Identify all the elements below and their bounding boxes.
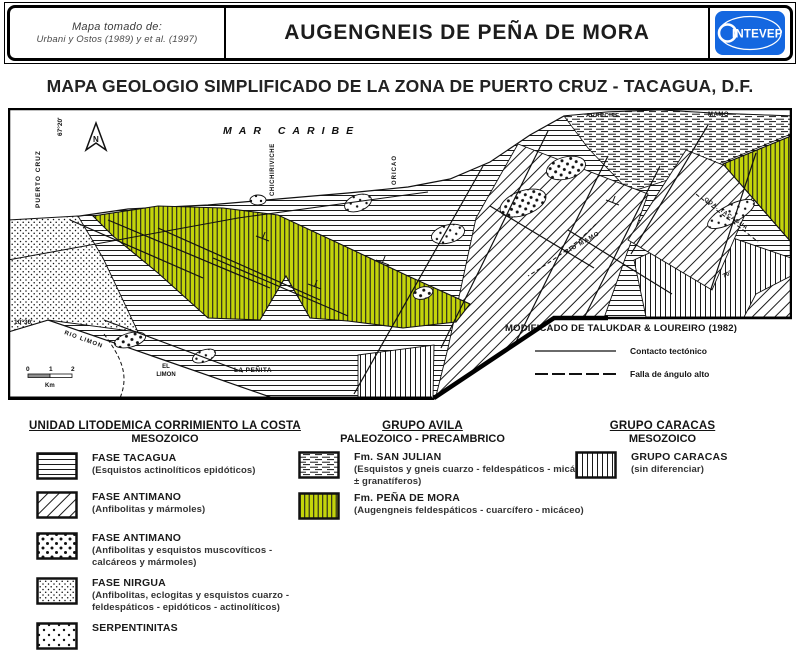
coord-left-label: 10°30' <box>14 318 33 326</box>
place-el-limon-2: LIMON <box>156 372 175 378</box>
legend-item: FASE NIRGUA (Anfibolitas, eclogitas y es… <box>36 577 330 613</box>
geologic-map: N 0 1 2 Km MAR CARIBE 67°20' 10°30' PUER… <box>8 108 792 400</box>
place-puerto-cruz: PUERTO CRUZ <box>35 150 42 208</box>
fault-line-label: Falla de ángulo alto <box>630 369 709 379</box>
map-source-note: Mapa tomado de: Urbani y Ostos (1989) y … <box>10 8 226 58</box>
legend-col2-title: GRUPO AVILA <box>290 420 555 432</box>
legend-col1-title: UNIDAD LITODEMICA CORRIMIENTO LA COSTA <box>24 420 306 432</box>
legend-item: SERPENTINITAS <box>36 622 330 650</box>
legend-col2-header: GRUPO AVILA PALEOZOICO - PRECAMBRICO <box>290 420 555 445</box>
scale-bar: 0 1 2 Km <box>26 366 75 389</box>
svg-text:N: N <box>93 135 99 144</box>
svg-text:Km: Km <box>45 383 55 389</box>
page-title: AUGENGNEIS DE PEÑA DE MORA <box>226 8 708 58</box>
legend-swatch-vertical-lines <box>575 451 617 479</box>
contact-line-label: Contacto tectónico <box>630 346 707 356</box>
svg-text:2: 2 <box>71 366 75 373</box>
coord-top-label: 67°20' <box>56 117 64 136</box>
legend-item: FASE ANTIMANO (Anfibolitas y mármoles) <box>36 491 330 519</box>
north-arrow-icon: N <box>86 123 106 150</box>
place-chichiriviche: CHICHIRIVICHE <box>270 143 276 196</box>
legend-item: Fm. SAN JULIAN (Esquistos y gneis cuarzo… <box>298 451 604 487</box>
map-notch-legend: MODIFICADO DE TALUKDAR & LOUREIRO (1982)… <box>505 323 737 379</box>
legend-item: FASE ANTIMANO (Anfibolitas y esquistos m… <box>36 532 317 568</box>
legend-col3-era: MESOZOICO <box>580 433 745 445</box>
logo-text: INTEVEP <box>732 29 783 41</box>
svg-text:0: 0 <box>26 366 30 373</box>
legend-col3-title: GRUPO CARACAS <box>580 420 745 432</box>
place-la-penita: LA PEÑITA <box>234 365 272 374</box>
legend-swatch-dashed-lines <box>298 451 340 479</box>
header: Mapa tomado de: Urbani y Ostos (1989) y … <box>4 2 796 64</box>
legend-swatch-green-vertical-lines <box>298 492 340 520</box>
legend-swatch-coarse-dots <box>36 532 78 560</box>
legend-swatch-diagonal-lines <box>36 491 78 519</box>
legend-item: FASE TACAGUA (Esquistos actinolíticos ep… <box>36 452 330 480</box>
place-mamo: MAMO <box>708 112 729 118</box>
legend-item: GRUPO CARACAS (sin diferenciar) <box>575 451 781 479</box>
legend-swatch-dots <box>36 622 78 650</box>
source-line2: Urbani y Ostos (1989) y et al. (1997) <box>36 34 197 45</box>
svg-text:1: 1 <box>49 366 53 373</box>
legend-col1-header: UNIDAD LITODEMICA CORRIMIENTO LA COSTA M… <box>24 420 306 445</box>
geologic-map-svg: N 0 1 2 Km MAR CARIBE 67°20' 10°30' PUER… <box>8 108 792 400</box>
legend-swatch-fine-dots <box>36 577 78 605</box>
place-el-limon-1: EL <box>162 364 170 370</box>
legend-item: Fm. PEÑA DE MORA (Augengneis feldespátic… <box>298 492 616 520</box>
intevep-logo: INTEVEP <box>714 10 786 56</box>
legend-col3-header: GRUPO CARACAS MESOZOICO <box>580 420 745 445</box>
legend-col2-era: PALEOZOICO - PRECAMBRICO <box>290 433 555 445</box>
legend-col1-era: MESOZOICO <box>24 433 306 445</box>
map-main-title: MAPA GEOLOGIO SIMPLIFICADO DE LA ZONA DE… <box>0 76 800 97</box>
source-line1: Mapa tomado de: <box>72 21 162 33</box>
legend-swatch-horizontal-lines <box>36 452 78 480</box>
logo-cell: INTEVEP <box>708 8 790 58</box>
place-oricao: ORICAO <box>392 155 398 185</box>
place-arrecife: ARRECIFE <box>586 113 620 119</box>
sea-label: MAR CARIBE <box>223 125 360 137</box>
